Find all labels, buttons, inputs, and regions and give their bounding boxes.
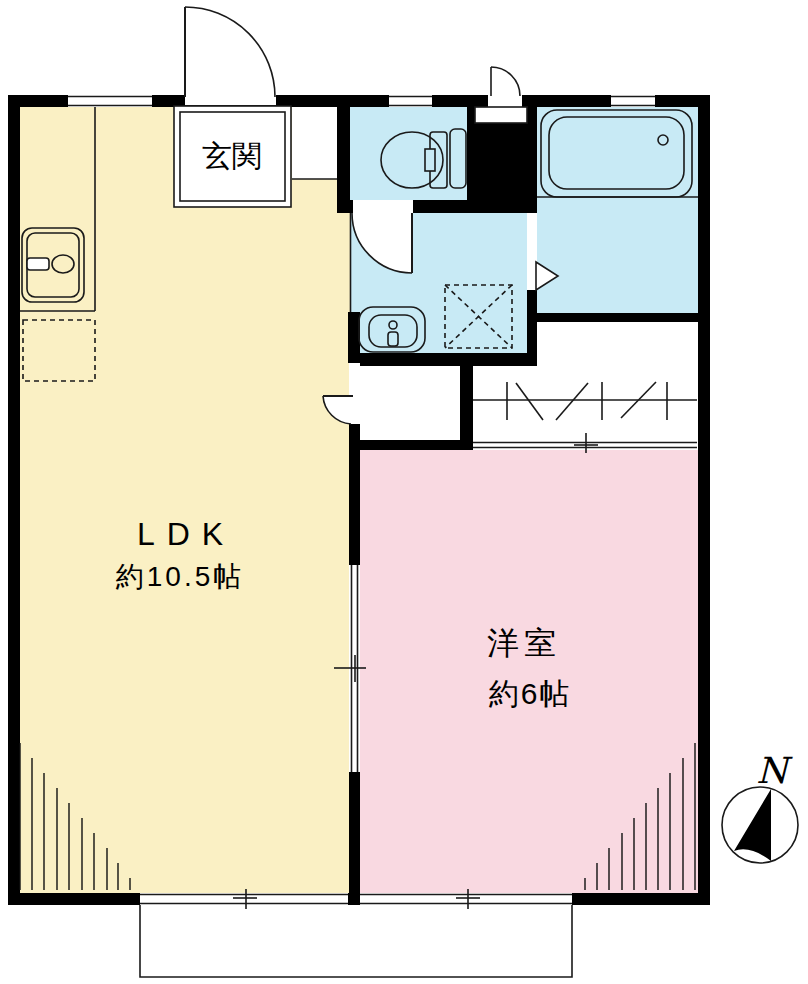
wall-closet-left bbox=[460, 363, 473, 440]
genkan-label: 玄関 bbox=[202, 139, 262, 172]
bathroom bbox=[537, 107, 698, 313]
wall-segment bbox=[276, 95, 389, 107]
wall-divider-upper bbox=[349, 450, 360, 565]
wall-segment bbox=[413, 200, 467, 213]
closet-hanger-pipe bbox=[473, 382, 697, 420]
western-room-area-label: 約6帖 bbox=[489, 677, 572, 710]
wall-segment bbox=[8, 893, 140, 905]
balcony-outline bbox=[140, 905, 572, 977]
wall-segment bbox=[348, 893, 360, 905]
wall-bath-bottom bbox=[527, 313, 710, 322]
genkan-hall bbox=[292, 107, 337, 179]
ldk-area-label: 約10.5帖 bbox=[116, 561, 245, 592]
compass-north-label: N bbox=[756, 750, 793, 791]
wall-segment bbox=[572, 893, 710, 905]
hanger-slash bbox=[556, 383, 588, 420]
wall-genkan-toilet bbox=[337, 105, 350, 213]
ldk-label: LDK bbox=[137, 516, 235, 552]
meter-box-opening bbox=[488, 95, 522, 107]
western-room-label: 洋室 bbox=[487, 625, 561, 661]
wall-segment bbox=[349, 440, 473, 450]
toilet-door-opening bbox=[353, 200, 413, 213]
wall-segment bbox=[522, 95, 611, 107]
closet-sliding-door bbox=[473, 433, 697, 453]
wall-left bbox=[8, 95, 20, 905]
compass: N bbox=[722, 750, 798, 863]
wall-segment bbox=[337, 200, 353, 213]
hanger-slash bbox=[516, 383, 543, 420]
wall-segment bbox=[432, 95, 488, 107]
wall-right bbox=[698, 95, 710, 905]
wall-divider-lower bbox=[349, 772, 360, 893]
faucet-base bbox=[27, 258, 49, 270]
ldk-room bbox=[20, 107, 350, 893]
door-swing-arc bbox=[491, 67, 520, 96]
meter-box-body bbox=[475, 107, 527, 123]
toilet-hinge bbox=[425, 149, 435, 171]
floor-plan-page: 玄関 LDK 約10.5帖 洋室 約6帖 N bbox=[0, 0, 808, 984]
wall-washroom-bottom bbox=[349, 353, 537, 366]
western-room bbox=[360, 450, 698, 893]
entrance-door bbox=[185, 7, 275, 97]
floor-plan-drawing: 玄関 LDK 約10.5帖 洋室 約6帖 N bbox=[0, 0, 808, 984]
wall-segment bbox=[152, 95, 185, 107]
door-swing-arc bbox=[185, 7, 275, 97]
